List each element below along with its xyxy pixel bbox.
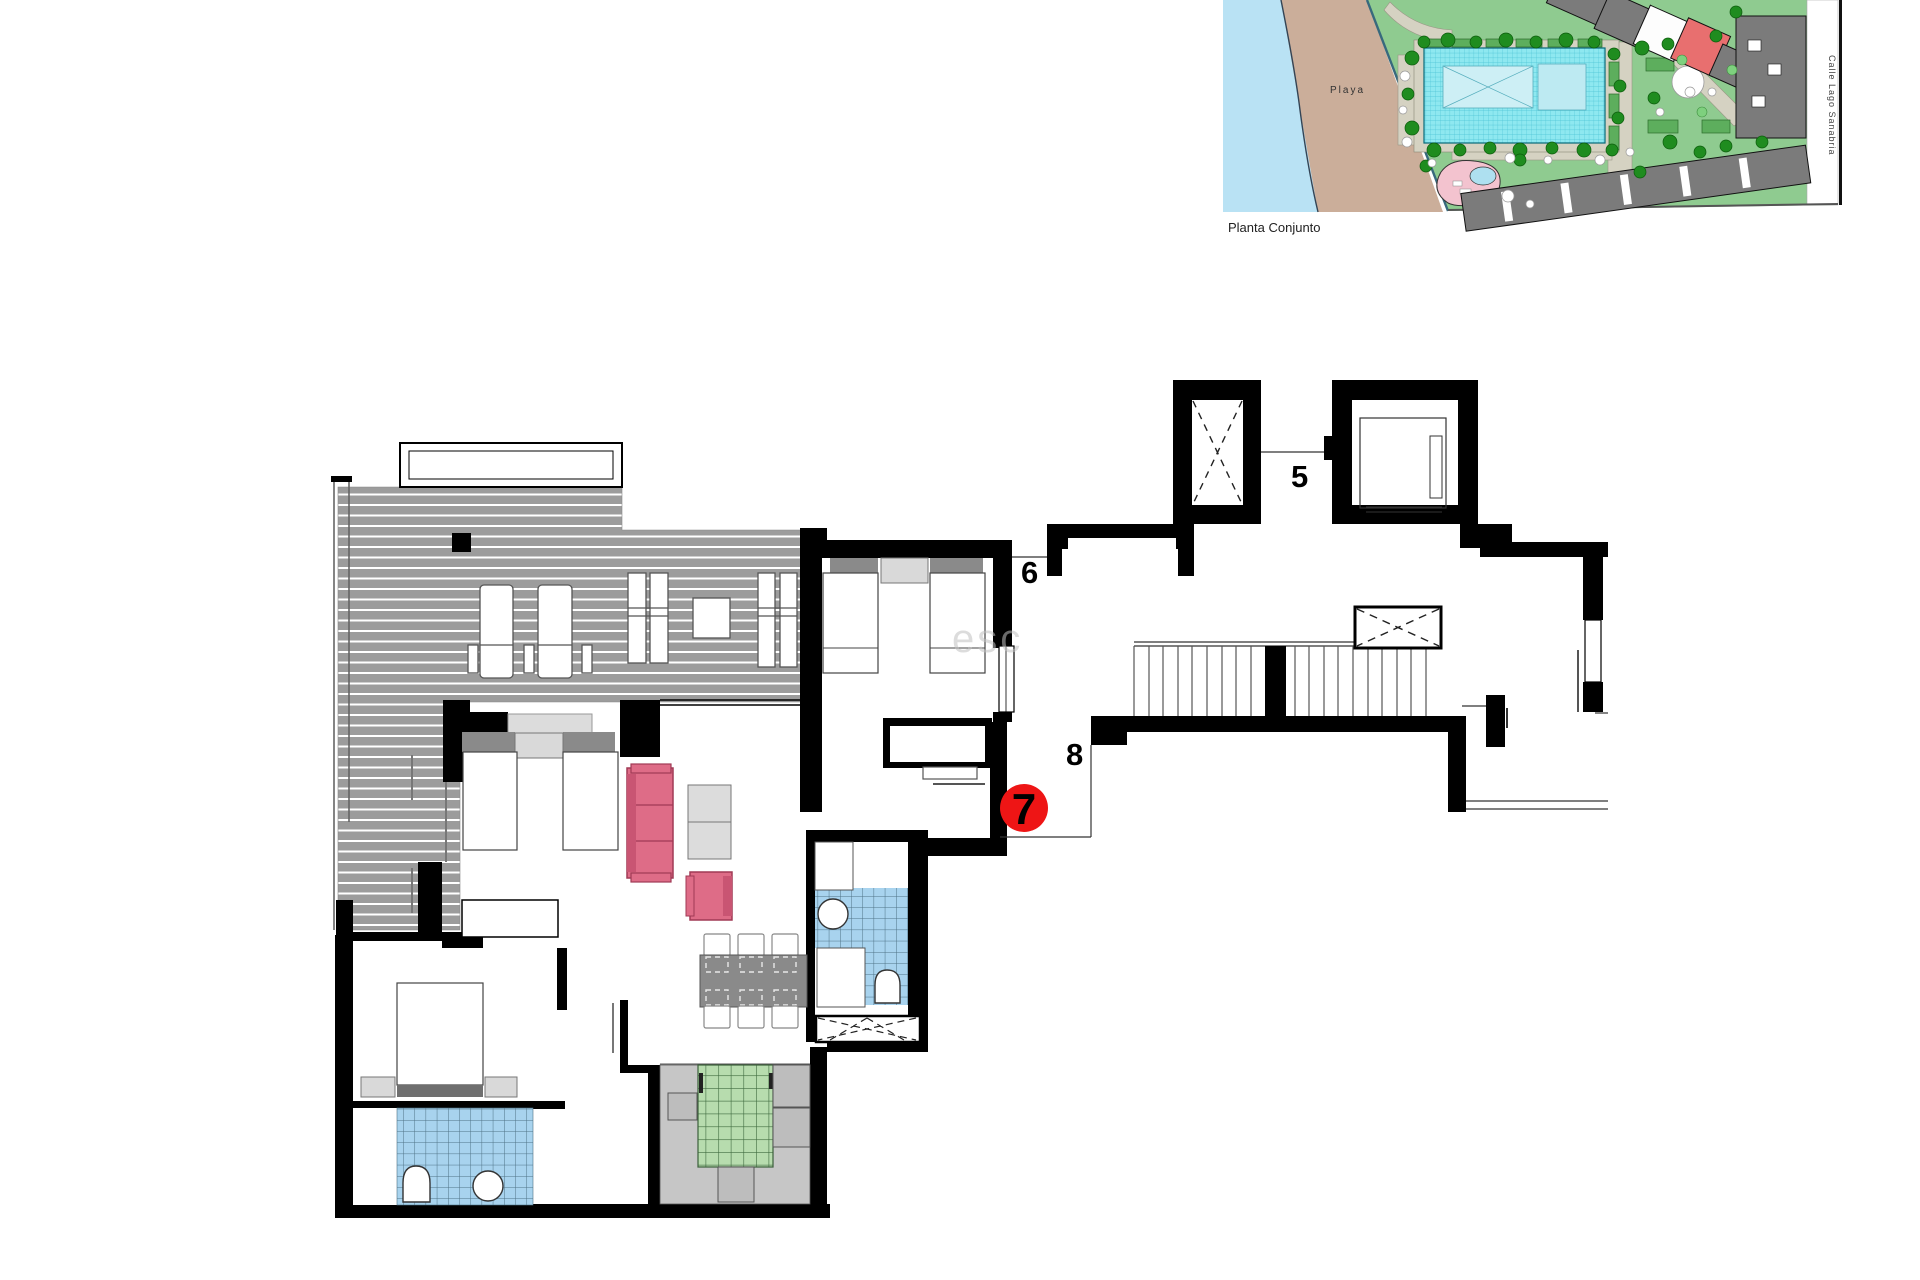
- bed: [397, 983, 483, 1085]
- inset-right-border: [1839, 0, 1842, 205]
- sink: [473, 1171, 503, 1201]
- headboard: [397, 1085, 483, 1097]
- toilet: [403, 1166, 430, 1202]
- side-unit: [773, 1065, 810, 1107]
- headboard: [462, 732, 515, 752]
- unit-8-label: 8: [1066, 737, 1083, 772]
- inset-caption: Planta Conjunto: [1228, 220, 1321, 235]
- wardrobe: [462, 900, 558, 937]
- terrace-deck: [331, 443, 808, 930]
- pillow-mark: [699, 1073, 703, 1093]
- bed-green: [698, 1065, 773, 1167]
- unit-5-label: 5: [1291, 459, 1308, 494]
- pillow-mark: [769, 1073, 773, 1089]
- bed: [823, 573, 878, 673]
- bathroom-2: [815, 842, 908, 1007]
- site-plan-inset: Playa Planta Conjunto Calle Lago Sanabri…: [1223, 0, 1842, 235]
- shower-closet: [815, 842, 853, 890]
- right-wing-lines: [1462, 620, 1608, 809]
- deck-column: [452, 533, 471, 552]
- floorplan-page: Playa Planta Conjunto Calle Lago Sanabri…: [0, 0, 1920, 1280]
- elevator-1: [1173, 380, 1261, 524]
- deck-table: [693, 598, 730, 638]
- beach-label: Playa: [1330, 85, 1365, 96]
- headboard: [563, 732, 615, 752]
- unit-7-label: 7: [1012, 785, 1036, 834]
- floor-plan: 6 5 8 7 esc: [331, 380, 1608, 1218]
- pool-inner-panel: [1538, 64, 1586, 110]
- nightstand: [361, 1077, 395, 1097]
- unit-7-marker: 7: [1000, 784, 1048, 834]
- armchair: [686, 872, 732, 920]
- bed: [563, 752, 618, 850]
- staircase: [1091, 607, 1466, 812]
- dining-chairs-bottom: [704, 1006, 798, 1028]
- toilet: [875, 970, 900, 1003]
- watermark: esc: [952, 617, 1023, 661]
- vestibule: [1047, 524, 1194, 576]
- deck-edge-cap: [331, 476, 352, 482]
- bed: [463, 752, 517, 850]
- side-table: [688, 785, 731, 822]
- bedroom-twin-center: [462, 732, 618, 937]
- shower-tray: [817, 948, 865, 1007]
- bath-zone: [353, 1108, 397, 1205]
- elevator-2: [1324, 380, 1478, 524]
- planter-inner: [409, 451, 613, 479]
- bedroom-double-bottom: [361, 983, 517, 1097]
- sideboard: [923, 767, 977, 779]
- sink: [818, 899, 848, 929]
- spa-pond: [1470, 167, 1496, 185]
- bathroom-1: [353, 1108, 533, 1205]
- utility-niche: [816, 1016, 920, 1042]
- deck-floor: [338, 487, 808, 930]
- side-table: [688, 822, 731, 859]
- window-sill: [930, 558, 983, 573]
- bedroom-green: [660, 1065, 810, 1204]
- stool: [718, 1167, 754, 1202]
- nightstand: [881, 558, 928, 583]
- stair-divider-wall: [1265, 646, 1286, 716]
- dining-table: [700, 955, 807, 1007]
- dining-area: [700, 934, 807, 1028]
- window: [1585, 620, 1601, 682]
- window-sill: [830, 558, 878, 573]
- nightstand: [668, 1093, 697, 1120]
- skylight: [1355, 607, 1441, 648]
- street-label: Calle Lago Sanabria: [1827, 55, 1837, 156]
- closet-interior: [890, 726, 985, 762]
- unit-6-label: 6: [1021, 555, 1038, 590]
- nightstand: [485, 1077, 517, 1097]
- sofa: [627, 764, 673, 882]
- nightstand: [515, 733, 563, 758]
- side-unit: [773, 1108, 810, 1147]
- dining-chairs-top: [704, 934, 798, 956]
- living-room: [627, 764, 732, 920]
- stair-wall: [1091, 716, 1466, 732]
- floor-plan-image: Playa Planta Conjunto Calle Lago Sanabri…: [0, 0, 1920, 1280]
